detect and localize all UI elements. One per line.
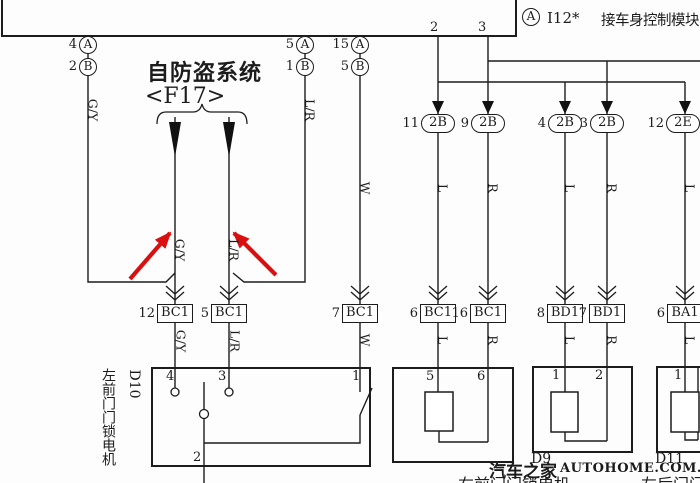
wire-label: L: [563, 184, 578, 192]
pin-group-right-b: 5 B: [341, 58, 369, 76]
module-name: 接车身控制模块: [601, 9, 699, 30]
antitheft-code: <F17>: [145, 84, 225, 109]
connector-letter-circle: B: [351, 58, 369, 76]
pin-number: 5: [286, 36, 294, 54]
wire-label: R: [605, 335, 620, 344]
chevron-icons: [166, 286, 694, 300]
pin-number: 5: [341, 58, 349, 76]
d11-pin-1: 1: [674, 368, 682, 383]
wire-label: L/R: [227, 239, 242, 261]
d10-pin-3: 3: [218, 369, 226, 384]
module-outline: [2, 0, 516, 36]
pin-number: 7: [579, 305, 587, 323]
pin-number: 2: [69, 58, 77, 76]
pin-number: 4: [69, 36, 77, 54]
wire-label: L: [436, 184, 451, 192]
wire-label: R: [605, 183, 620, 192]
d10-id: D10: [126, 369, 142, 398]
wire-label: R: [486, 335, 501, 344]
wiring-diagram-page: A I12* 接车身控制模块 2 3 4 A 2 B 5 A 1 B 15 A …: [0, 0, 700, 483]
module-pin-3: 3: [478, 20, 486, 35]
connector-id: 2B: [421, 114, 455, 133]
connector-id: BC1: [342, 304, 378, 323]
connector-id: BA1: [667, 304, 700, 323]
f17-arrow-icons: [169, 122, 235, 157]
wire-label: R: [486, 183, 501, 192]
inline-connector: 6 BC1: [410, 304, 456, 323]
box2-pin-6: 6: [477, 369, 485, 384]
d10-pin-2: 2: [193, 450, 201, 465]
pin-number: 16: [451, 305, 468, 323]
inline-connector: 12 BC1: [138, 304, 193, 323]
connector-letter-circle: A: [296, 36, 314, 54]
inline-connector: 6 BA1: [657, 304, 700, 323]
wire-label: L/R: [228, 330, 243, 352]
inline-connector: 16 BC1: [451, 304, 506, 323]
contact-circles: [171, 388, 233, 419]
inline-connector: 7 BD1: [579, 304, 625, 323]
connector-id: BD1: [547, 304, 583, 323]
antitheft-title: 自防盗系统: [147, 55, 262, 87]
connector-letter-circle: B: [79, 58, 97, 76]
wire-label: L: [683, 184, 698, 192]
wire-label: W: [358, 182, 373, 195]
connector-id: BC1: [157, 304, 193, 323]
pin-number: 8: [537, 305, 545, 323]
module-id: I12*: [547, 9, 580, 27]
oval-connector: 12 2E: [647, 114, 700, 133]
oval-connector: 4 2B: [538, 114, 582, 133]
d9-pin-1: 1: [552, 368, 560, 383]
wire-label: L: [683, 336, 698, 344]
pin-group-left-b: 2 B: [69, 58, 97, 76]
pin-number: 15: [332, 36, 349, 54]
pin-group-mid-b: 1 B: [286, 58, 314, 76]
connector-id: 2B: [590, 114, 624, 133]
pin-group-mid-a: 5 A: [286, 36, 314, 54]
feed-arrow-icons: [432, 101, 691, 114]
wire-label: L: [436, 336, 451, 344]
d9-pin-2: 2: [595, 368, 603, 383]
pin-number: 5: [201, 305, 209, 323]
d10-name: 左前门门锁电机: [100, 368, 116, 466]
pin-group-left-a: 4 A: [69, 36, 97, 54]
connector-id: BD1: [589, 304, 625, 323]
pin-number: 12: [647, 115, 664, 133]
connector-id: 2B: [548, 114, 582, 133]
wire-label: L/R: [303, 99, 318, 121]
connector-letter-circle: A: [79, 36, 97, 54]
pin-number: 3: [580, 115, 588, 133]
module-pin-2: 2: [430, 20, 438, 35]
highlight-arrows: [130, 233, 276, 279]
inline-connector: 8 BD1: [537, 304, 583, 323]
pin-number: 6: [410, 305, 418, 323]
connector-id: BC1: [470, 304, 506, 323]
oval-connector: 3 2B: [580, 114, 624, 133]
inline-connector: 7 BC1: [332, 304, 378, 323]
pin-number: 7: [332, 305, 340, 323]
pin-number: 11: [402, 115, 419, 133]
pin-number: 12: [138, 305, 155, 323]
wire-label: L: [563, 336, 578, 344]
d10-pin-1: 1: [352, 369, 360, 384]
connector-id: BC1: [211, 304, 247, 323]
wire-label: G/Y: [86, 99, 101, 121]
connector-id: 2E: [666, 114, 700, 133]
pin-group-right-a: 15 A: [332, 36, 369, 54]
connector-id: 2B: [471, 114, 505, 133]
pin-number: 9: [461, 115, 469, 133]
pin-number: 6: [657, 305, 665, 323]
watermark-url: AUTOHOME.COM.CN: [560, 461, 700, 476]
wire-label: G/Y: [174, 330, 189, 352]
highlight-arrow-left: [130, 233, 170, 279]
oval-connector: 11 2B: [402, 114, 455, 133]
wire-label: W: [358, 334, 373, 347]
pin-number: 1: [286, 58, 294, 76]
module-connector-circle: A: [522, 8, 540, 26]
box2-pin-5: 5: [426, 369, 434, 384]
oval-connector: 9 2B: [461, 114, 505, 133]
watermark-site: 汽车之家: [489, 457, 557, 482]
inline-connector: 5 BC1: [201, 304, 247, 323]
connector-letter-circle: B: [296, 58, 314, 76]
d10-pin-4: 4: [166, 369, 174, 384]
wire-label: G/Y: [173, 239, 188, 261]
connector-letter-circle: A: [351, 36, 369, 54]
pin-number: 4: [538, 115, 546, 133]
